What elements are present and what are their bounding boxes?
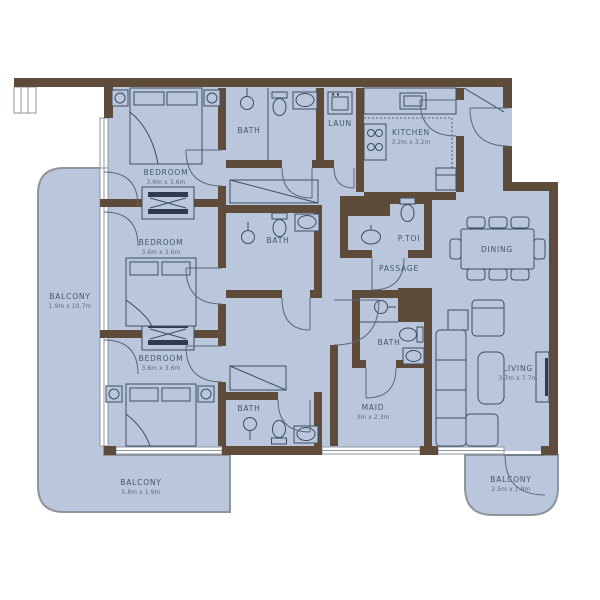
- wall-top: [14, 78, 512, 87]
- balcony-bottom-label: BALCONY: [120, 478, 161, 487]
- wall-maid-right: [424, 322, 432, 446]
- maid-label: MAID: [362, 403, 385, 412]
- armchair: [472, 300, 504, 336]
- nightstand: [198, 386, 214, 402]
- balcony-left-label: BALCONY: [49, 292, 90, 301]
- closet-bedroom2: [230, 180, 318, 203]
- wall-maidbath-left: [352, 290, 360, 368]
- laundry-label: LAUN: [328, 119, 352, 128]
- wall-bath2-bottom-a: [226, 290, 282, 298]
- bath1-label: BATH: [237, 126, 260, 135]
- bedroom3-label: BEDROOM: [139, 354, 184, 363]
- dining-chair: [534, 239, 545, 259]
- dining-chair: [467, 217, 485, 228]
- wall-ptoi-right: [424, 196, 432, 258]
- maid-dims: 3m x 2.3m: [356, 415, 389, 421]
- bedroom1-label: BEDROOM: [144, 168, 189, 177]
- wall-kitchen-right-a: [456, 88, 464, 100]
- wall-ptoi-shaft: [340, 196, 390, 216]
- toilet-icon: [272, 92, 287, 98]
- balcony-right-label: BALCONY: [490, 475, 531, 484]
- washer-knob: [337, 93, 339, 95]
- wall-bath2-bottom-b: [310, 290, 322, 298]
- balcony-right-floor: [465, 455, 558, 515]
- wall-bath3-top: [226, 392, 278, 400]
- wardrobe-1: [142, 187, 194, 219]
- bath2-label: BATH: [266, 236, 289, 245]
- wall-bottom-c: [541, 446, 558, 455]
- wall-laun-bottom: [324, 160, 334, 168]
- closet-bedroom3: [230, 366, 286, 390]
- bedroom2-label: BEDROOM: [139, 238, 184, 247]
- fridge-icon: [436, 168, 456, 190]
- balcony-bottom-dims: 5.8m x 1.9m: [121, 490, 160, 496]
- dining-chair: [511, 269, 529, 280]
- balcony-right-dims: 2.5m x 1.9m: [491, 487, 530, 493]
- floor-plan-svg: BEDROOM 3.6m x 3.6m BEDROOM 3.6m x 3.6m …: [0, 0, 600, 600]
- bedroom2-dims: 3.6m x 3.6m: [141, 250, 180, 256]
- wall-ptoi-bottom-a: [340, 250, 372, 258]
- pillow: [167, 92, 197, 105]
- floor-plan-canvas: BEDROOM 3.6m x 3.6m BEDROOM 3.6m x 3.6m …: [0, 0, 600, 600]
- wall-right-main: [549, 182, 558, 455]
- side-table: [448, 310, 468, 330]
- bedroom1-dims: 3.6m x 3.6m: [146, 180, 185, 186]
- balcony-left-dims: 1.9m x 10.7m: [49, 304, 92, 310]
- wall-bottom-a: [104, 446, 116, 455]
- nightstand: [112, 90, 128, 106]
- ptoi-label: P.TOI: [398, 234, 420, 243]
- maid-bath-label: BATH: [377, 338, 400, 347]
- wardrobe-bar: [148, 192, 188, 197]
- pillow: [134, 92, 164, 105]
- washer-knob: [332, 93, 334, 95]
- pillow: [130, 388, 158, 401]
- dining-chair: [489, 217, 507, 228]
- sofa-chaise: [466, 414, 498, 446]
- toilet-icon: [417, 327, 423, 342]
- living-dims: 3.7m x 7.7m: [498, 376, 537, 382]
- bath3-label: BATH: [237, 404, 260, 413]
- dining-chair: [511, 217, 529, 228]
- wall-kitchen-left: [356, 88, 364, 192]
- bedroom2-furniture: [126, 258, 196, 326]
- wall-spine-2: [218, 186, 226, 268]
- wall-maid-shaft: [398, 288, 432, 322]
- dining-chair: [467, 269, 485, 280]
- wall-bath1-bottom: [226, 160, 282, 168]
- dining-chair: [489, 269, 507, 280]
- kitchen-label: KITCHEN: [392, 128, 430, 137]
- stove-icon: [364, 124, 386, 160]
- kitchen-counter: [364, 88, 456, 114]
- wall-bottom-b: [420, 446, 438, 455]
- living-label: LIVING: [503, 364, 533, 373]
- dining-label: DINING: [481, 245, 513, 254]
- sofa: [436, 330, 466, 446]
- nightstand: [204, 90, 220, 106]
- wardrobe-bar: [148, 209, 188, 214]
- toilet-icon: [400, 198, 415, 204]
- wall-bottom-bath3: [222, 446, 322, 455]
- wall-spine-4: [218, 382, 226, 446]
- wall-spine-3: [218, 304, 226, 346]
- bedroom3-dims: 3.6m x 3.6m: [141, 366, 180, 372]
- nightstand: [106, 386, 122, 402]
- wall-maid-left: [330, 345, 338, 446]
- kitchen-dims: 3.2m x 3.2m: [391, 140, 430, 146]
- toilet-icon: [272, 213, 287, 219]
- wall-maidbath-bottom-a: [352, 360, 366, 368]
- wall-bath2-top: [226, 205, 322, 213]
- balcony-right: [465, 455, 558, 515]
- tv-icon: [545, 358, 548, 396]
- pillow: [162, 388, 190, 401]
- pillow: [130, 262, 158, 275]
- wall-kitchen-right-b: [456, 136, 464, 192]
- laundry-fixtures: [328, 92, 352, 114]
- toilet-icon: [272, 438, 287, 444]
- window-top-left-louver: [14, 87, 36, 113]
- dining-chair: [450, 239, 461, 259]
- wardrobe-bar: [148, 340, 188, 345]
- wall-ptoi-bottom-b: [408, 250, 432, 258]
- wall-right-upper-a: [503, 78, 512, 108]
- passage-label: PASSAGE: [379, 264, 419, 273]
